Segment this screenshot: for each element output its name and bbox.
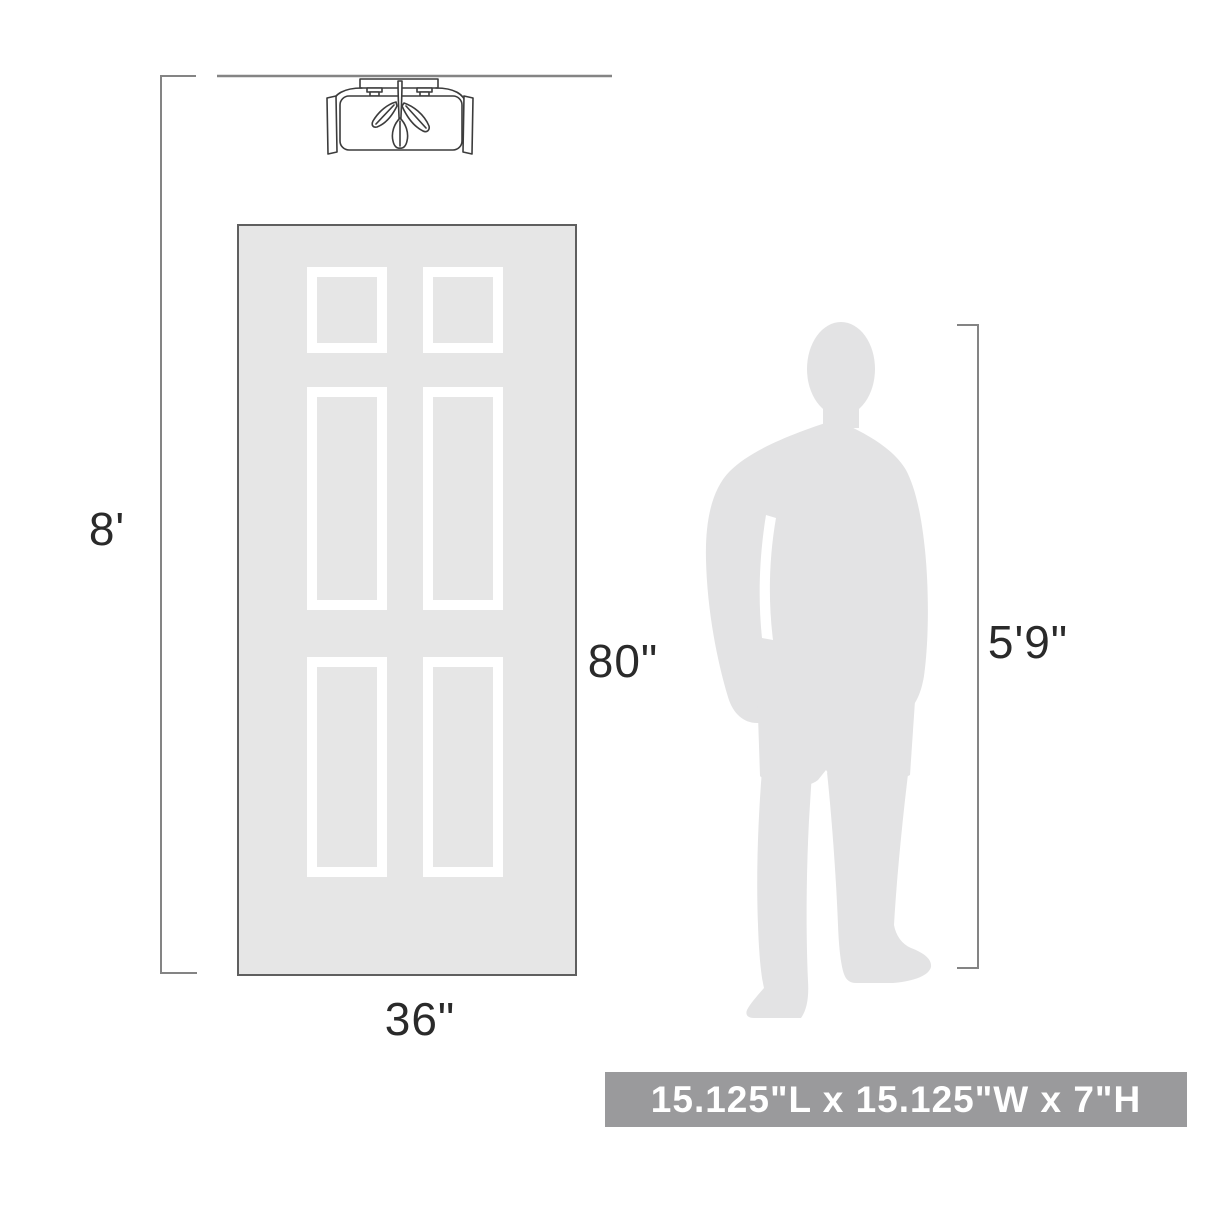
person-right-leg — [827, 772, 931, 983]
person-height-label: 5'9" — [988, 619, 1068, 665]
dimensions-banner-text: 15.125"L x 15.125"W x 7"H — [651, 1081, 1141, 1118]
person-left-leg — [746, 770, 812, 1018]
person-silhouette-icon — [706, 322, 931, 1018]
person-hips — [757, 686, 916, 788]
door-panel-inner — [317, 667, 377, 867]
fixture-left-trim — [327, 96, 337, 154]
door-panel-inner — [433, 277, 493, 343]
dimensions-banner: 15.125"L x 15.125"W x 7"H — [605, 1072, 1187, 1127]
door-width-label: 36" — [385, 996, 456, 1042]
door-panel-inner — [433, 667, 493, 867]
door-icon — [238, 225, 576, 975]
door-panel-inner — [317, 397, 377, 600]
scale-diagram-artwork — [0, 0, 1214, 1214]
fixture-right-trim — [463, 96, 473, 154]
product-scale-diagram: 8' 80" 36" 5'9" 15.125"L x 15.125"W x 7"… — [0, 0, 1214, 1214]
door-height-label: 80" — [588, 638, 659, 684]
door-slab — [238, 225, 576, 975]
person-torso — [706, 418, 928, 728]
ceiling-height-dimension-bracket — [161, 76, 197, 973]
door-panel-inner — [433, 397, 493, 600]
ceiling-light-fixture-icon — [327, 79, 473, 154]
person-height-dimension-bracket — [957, 325, 978, 968]
door-panel-inner — [317, 277, 377, 343]
ceiling-height-label: 8' — [89, 506, 125, 552]
